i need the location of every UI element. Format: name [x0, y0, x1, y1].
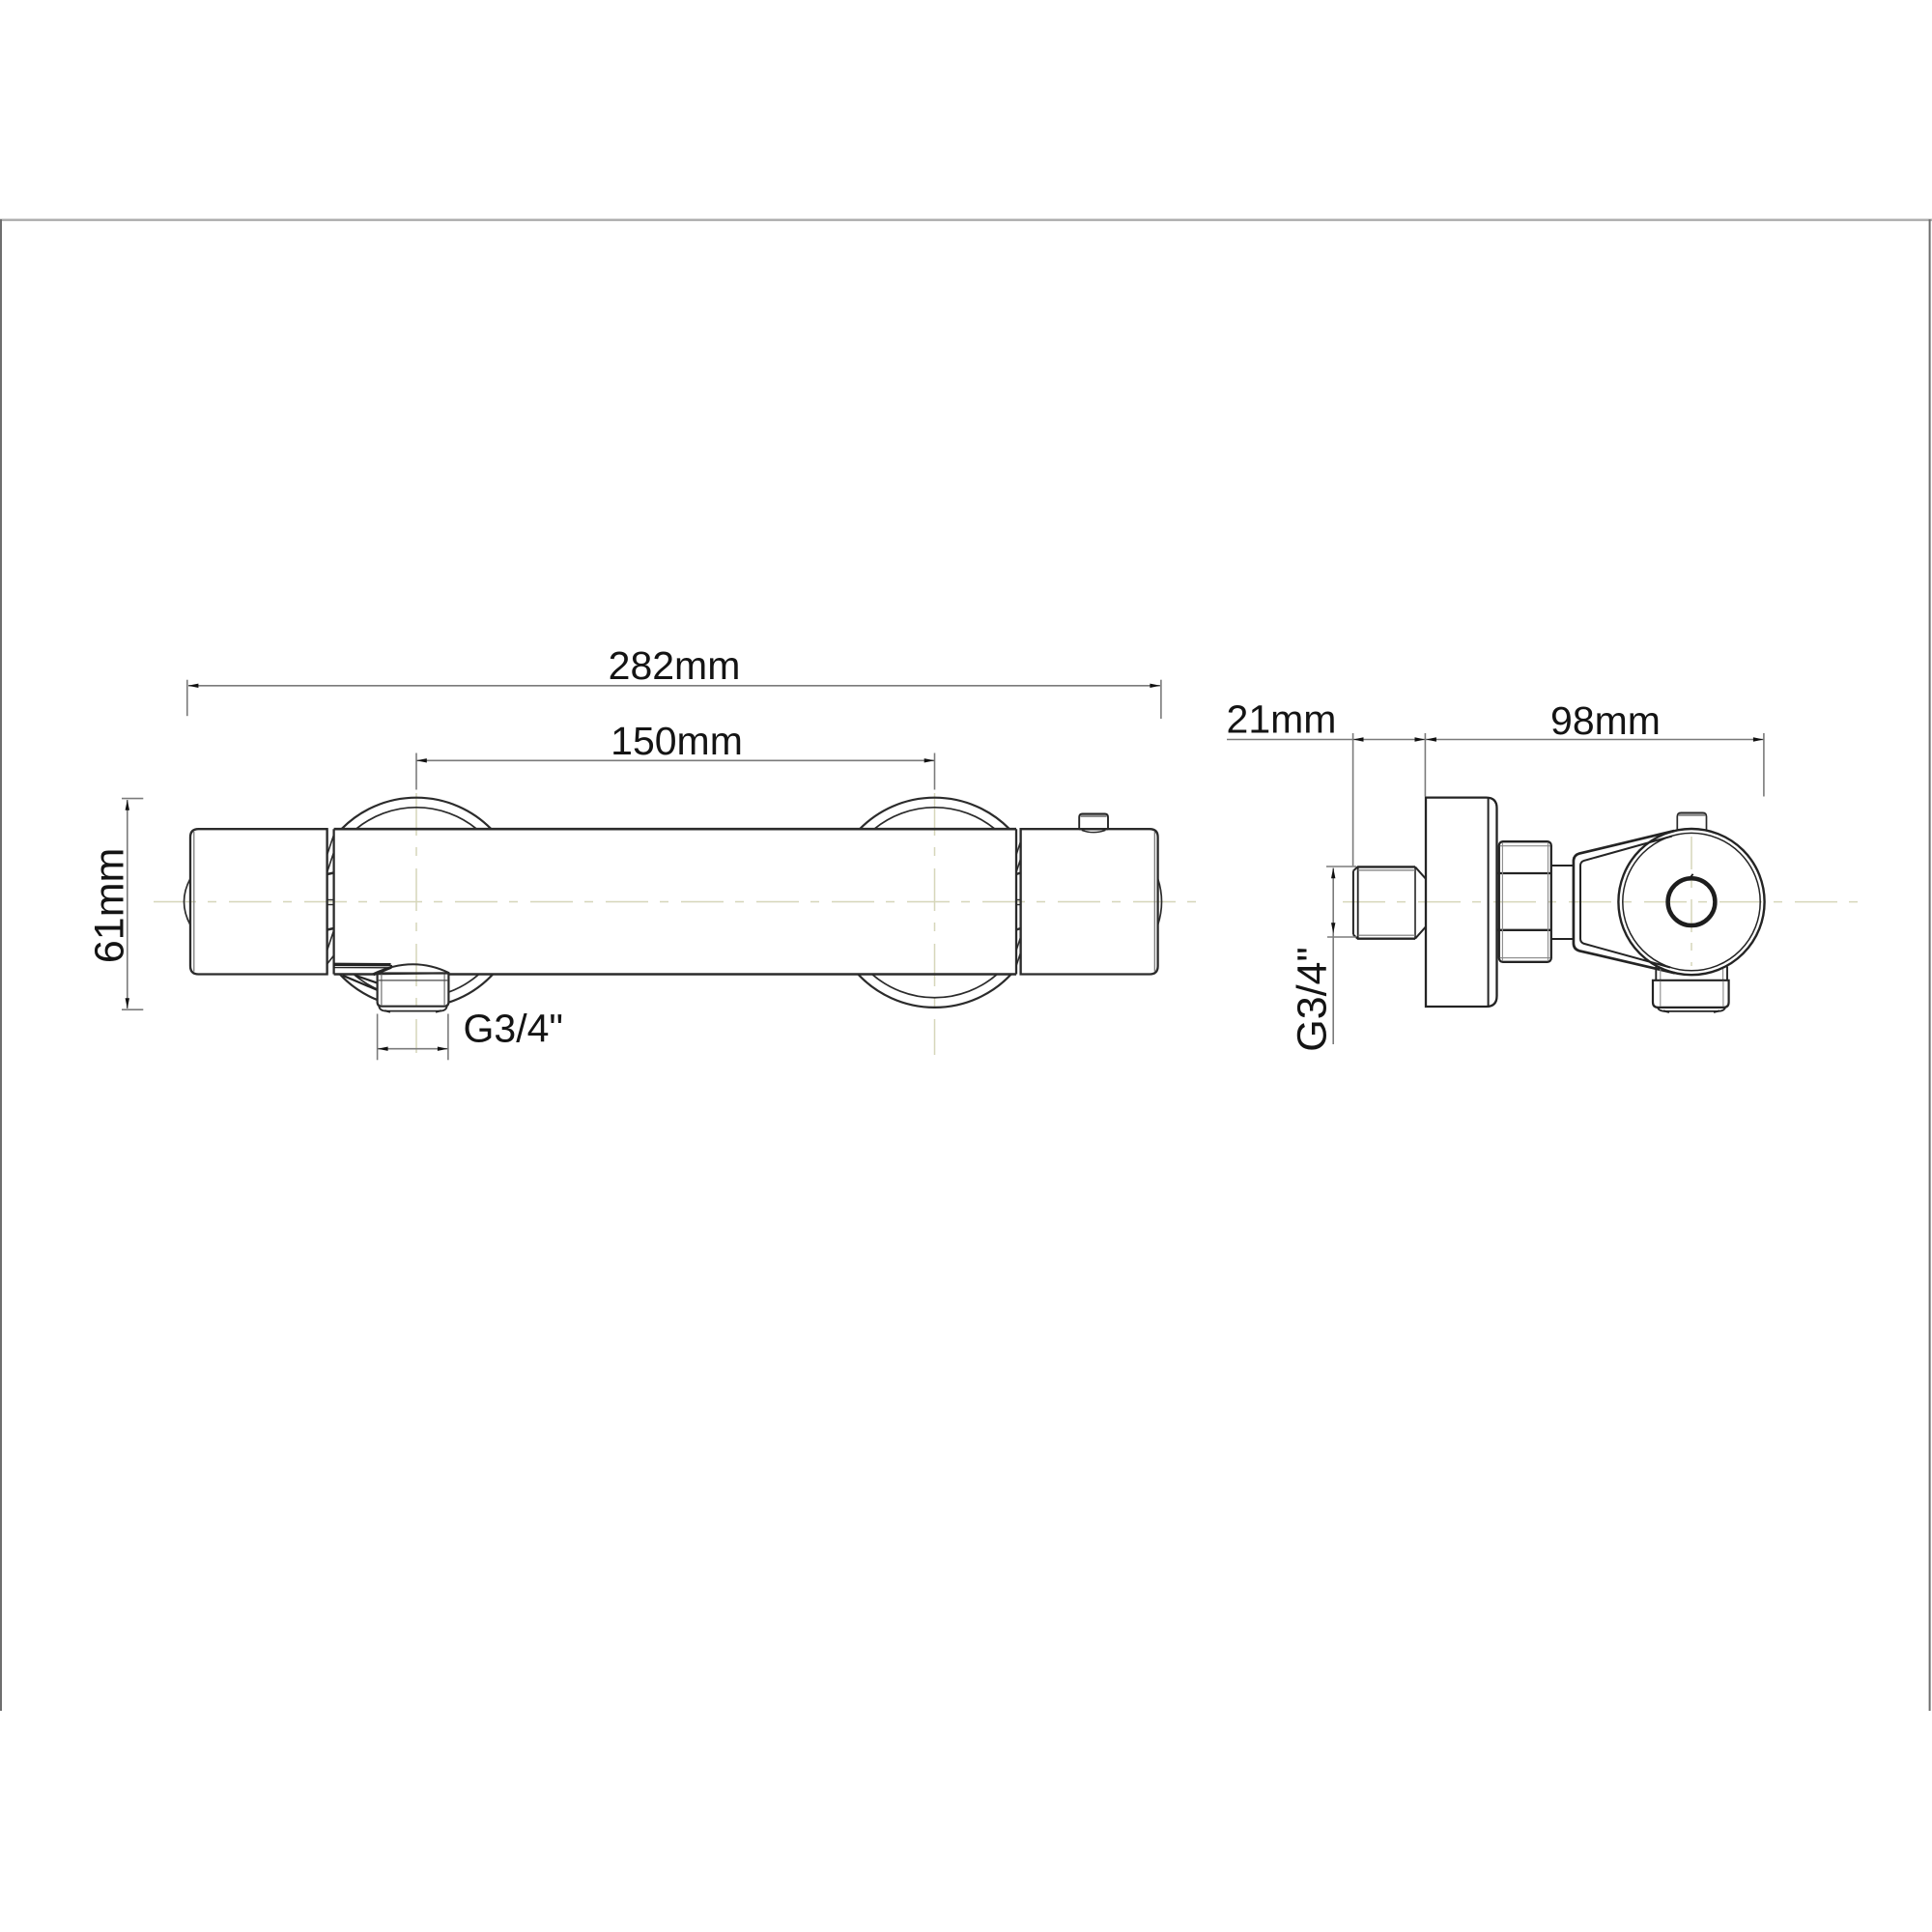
svg-text:G3/4": G3/4" [464, 1007, 563, 1051]
svg-text:21mm: 21mm [1227, 697, 1337, 742]
svg-text:282mm: 282mm [609, 643, 741, 688]
svg-text:61mm: 61mm [87, 848, 133, 963]
svg-text:150mm: 150mm [611, 719, 743, 763]
svg-text:98mm: 98mm [1550, 698, 1661, 743]
svg-text:G3/4": G3/4" [1290, 947, 1336, 1052]
